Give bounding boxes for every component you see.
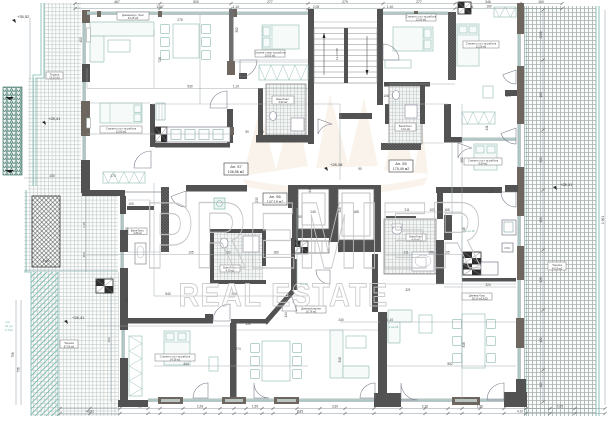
svg-text:40,91: 40,91	[86, 410, 94, 414]
svg-text:2,05: 2,05	[313, 5, 320, 9]
svg-text:33,45 м2: 33,45 м2	[128, 16, 139, 20]
svg-text:318: 318	[338, 357, 342, 363]
svg-text:160: 160	[486, 5, 492, 9]
svg-text:120: 120	[505, 94, 511, 98]
svg-text:279: 279	[342, 0, 348, 4]
svg-text:1,10: 1,10	[233, 85, 239, 89]
svg-text:728: 728	[158, 57, 162, 63]
svg-text:Ап. 55: Ап. 55	[395, 161, 407, 166]
svg-text:175,49 м2: 175,49 м2	[393, 167, 409, 171]
svg-text:4,10 м2: 4,10 м2	[401, 127, 411, 131]
svg-text:441: 441	[485, 125, 489, 131]
svg-text:150: 150	[49, 174, 55, 178]
svg-text:к-ла 24: к-ла 24	[389, 325, 399, 329]
svg-text:160: 160	[539, 92, 543, 98]
svg-text:PREMIER: PREMIER	[145, 182, 484, 288]
svg-text:12,59 м2: 12,59 м2	[476, 45, 487, 49]
svg-text:REAL ESTATE: REAL ESTATE	[178, 278, 388, 314]
svg-text:28,20 м2: 28,20 м2	[472, 297, 483, 301]
svg-text:+28,41: +28,41	[48, 116, 61, 121]
svg-text:150: 150	[539, 217, 543, 223]
svg-text:736: 736	[17, 367, 21, 373]
svg-text:1,10: 1,10	[387, 318, 393, 322]
svg-text:277: 277	[416, 0, 422, 4]
svg-text:1,10: 1,10	[233, 5, 240, 9]
svg-text:67,06 м2: 67,06 м2	[64, 345, 75, 349]
svg-text:+28,41: +28,41	[72, 315, 85, 320]
svg-text:540: 540	[165, 292, 171, 296]
svg-text:1407: 1407	[156, 5, 164, 9]
svg-text:94,59 м2: 94,59 м2	[552, 267, 563, 271]
svg-text:502: 502	[125, 297, 129, 303]
svg-text:500: 500	[193, 0, 199, 4]
svg-text:1,60: 1,60	[43, 259, 50, 263]
svg-text:СУШ: СУШ	[504, 246, 510, 250]
svg-text:138: 138	[539, 277, 543, 283]
svg-text:243: 243	[482, 297, 488, 301]
svg-text:14,39 м2: 14,39 м2	[170, 358, 181, 362]
svg-text:160: 160	[538, 0, 544, 4]
svg-text:3,90 м2: 3,90 м2	[279, 100, 289, 104]
svg-text:14,17/28: 14,17/28	[335, 48, 339, 60]
svg-text:132: 132	[539, 337, 543, 343]
svg-text:100: 100	[128, 202, 134, 206]
svg-text:106: 106	[383, 94, 389, 98]
svg-text:530: 530	[187, 85, 193, 89]
svg-text:106,56 м2: 106,56 м2	[228, 170, 244, 174]
svg-text:2208: 2208	[539, 31, 543, 38]
svg-text:552: 552	[447, 362, 453, 366]
svg-text:4,28 м2: 4,28 м2	[133, 232, 142, 235]
svg-text:321: 321	[405, 288, 411, 292]
svg-text:960: 960	[460, 157, 464, 163]
svg-text:Тераса: Тераса	[552, 263, 562, 267]
svg-text:3,30: 3,30	[332, 405, 338, 409]
svg-text:302: 302	[235, 27, 239, 33]
svg-text:90: 90	[245, 130, 249, 134]
svg-text:48: 48	[260, 130, 264, 134]
svg-text:444: 444	[183, 362, 189, 366]
svg-text:Тераса: Тераса	[64, 341, 74, 345]
svg-text:380: 380	[125, 227, 129, 233]
svg-text:2,20: 2,20	[422, 405, 428, 409]
svg-text:346: 346	[485, 0, 491, 4]
svg-text:446: 446	[107, 337, 111, 342]
svg-text:150: 150	[245, 322, 251, 326]
svg-text:12,80 м2: 12,80 м2	[116, 130, 127, 134]
svg-text:1 961: 1 961	[601, 216, 605, 224]
svg-text:318: 318	[462, 342, 466, 348]
svg-text:1,90: 1,90	[487, 190, 493, 194]
svg-text:277: 277	[267, 0, 273, 4]
svg-text:4,10: 4,10	[517, 410, 523, 414]
svg-text:+35,52: +35,52	[17, 14, 30, 19]
svg-text:8,85: 8,85	[297, 410, 303, 414]
svg-text:9,99 м2: 9,99 м2	[479, 162, 489, 166]
svg-text:756: 756	[11, 352, 15, 358]
svg-text:2,28: 2,28	[197, 405, 203, 409]
svg-text:6,7м2: 6,7м2	[5, 328, 13, 332]
svg-text:2,05: 2,05	[557, 405, 563, 409]
svg-text:274: 274	[235, 347, 241, 351]
svg-text:460: 460	[82, 252, 86, 257]
svg-text:1,50: 1,50	[477, 405, 483, 409]
svg-text:324: 324	[485, 283, 491, 287]
svg-text:Ап. 57: Ап. 57	[230, 164, 242, 169]
svg-text:+28,38: +28,38	[330, 162, 343, 167]
svg-text:16,16 м2: 16,16 м2	[49, 76, 60, 80]
svg-text:+28,41: +28,41	[560, 182, 573, 187]
svg-text:402: 402	[79, 37, 83, 43]
svg-text:275: 275	[177, 18, 183, 22]
svg-text:19,03 м2: 19,03 м2	[265, 54, 276, 58]
svg-text:1,10: 1,10	[387, 5, 394, 9]
svg-text:467: 467	[114, 0, 120, 4]
svg-text:110: 110	[539, 382, 543, 387]
svg-text:274: 274	[110, 174, 116, 178]
svg-text:1,15: 1,15	[82, 222, 86, 228]
svg-text:1,55: 1,55	[252, 405, 258, 409]
svg-text:90: 90	[358, 167, 362, 171]
svg-text:13,95 м2: 13,95 м2	[416, 18, 427, 22]
svg-text:240: 240	[338, 318, 344, 322]
svg-text:340: 340	[539, 157, 543, 163]
